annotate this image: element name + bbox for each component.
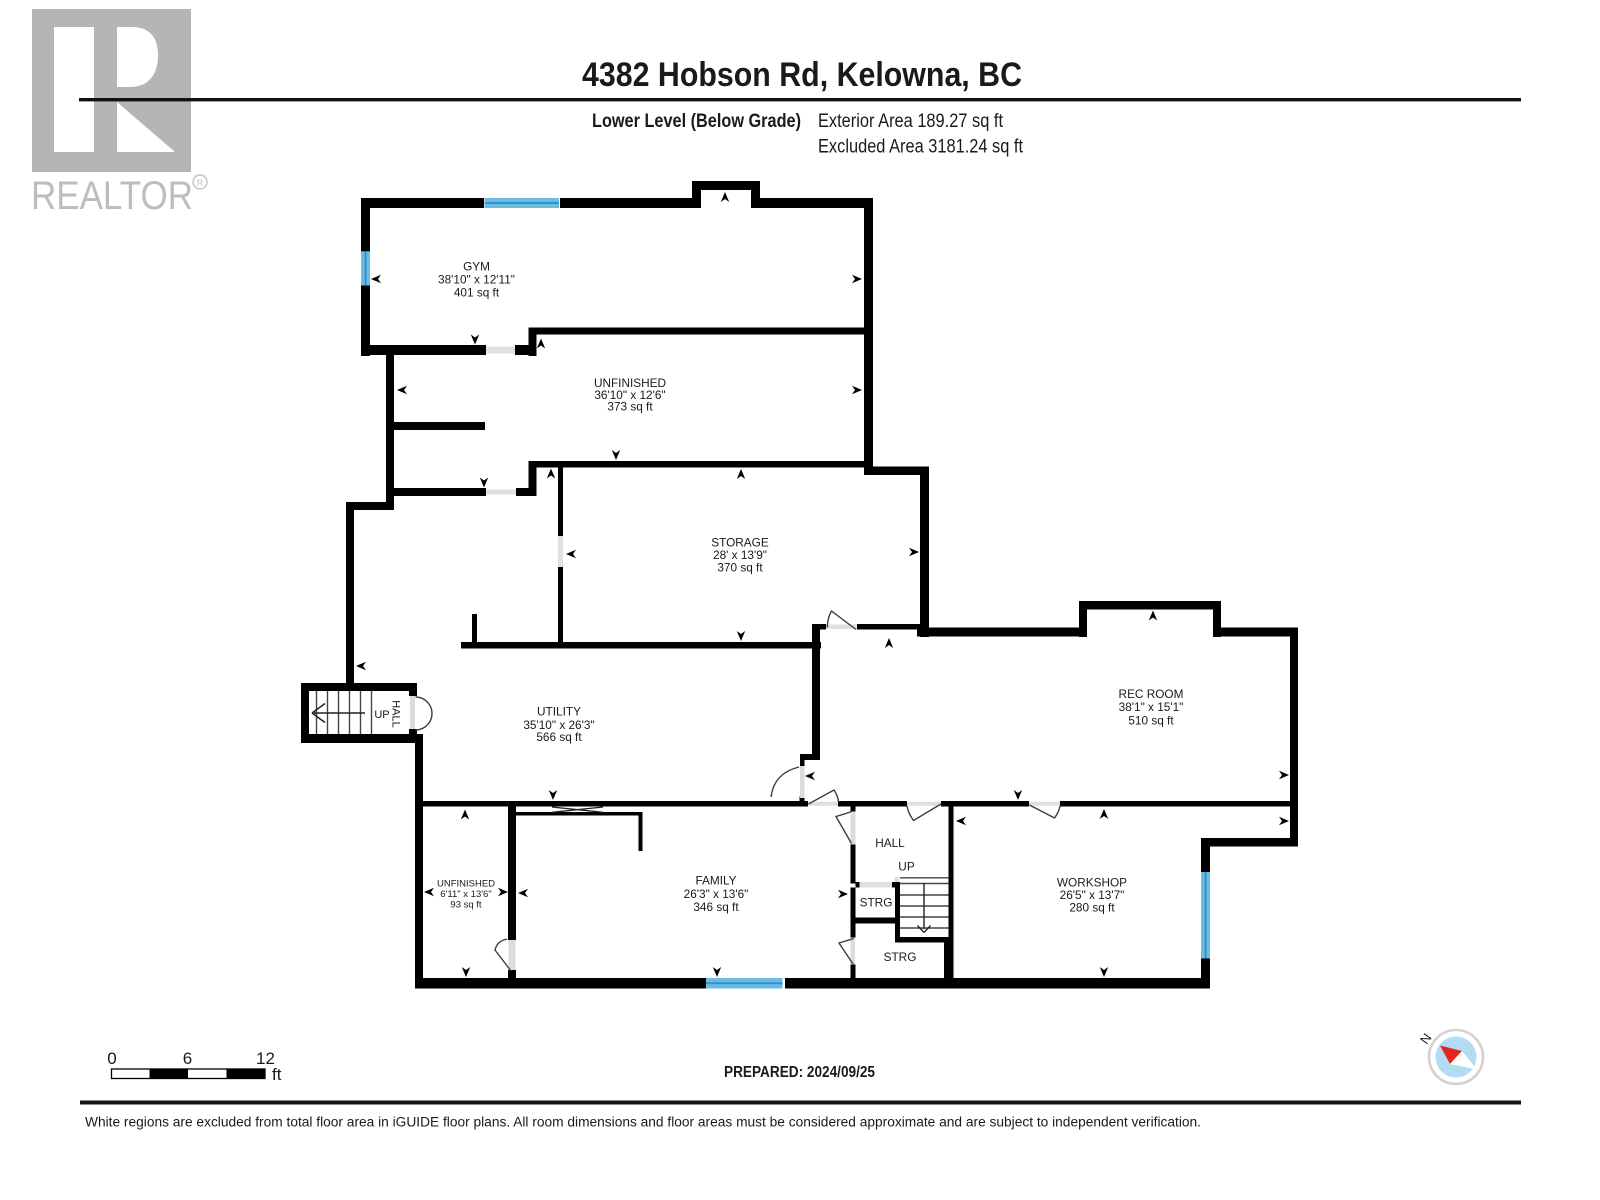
svg-text:UNFINISHED: UNFINISHED [437,879,495,890]
svg-text:510 sq ft: 510 sq ft [1128,714,1174,728]
svg-text:PREPARED: 2024/09/25: PREPARED: 2024/09/25 [724,1064,875,1081]
svg-text:6'11" x 13'6": 6'11" x 13'6" [440,889,491,900]
svg-text:STRG: STRG [884,950,917,964]
svg-text:566 sq ft: 566 sq ft [536,730,582,744]
svg-text:4382 Hobson Rd, Kelowna, BC: 4382 Hobson Rd, Kelowna, BC [582,56,1022,94]
svg-text:STRG: STRG [860,896,893,910]
svg-text:UTILITY: UTILITY [537,704,581,718]
svg-text:401 sq ft: 401 sq ft [454,285,500,299]
svg-text:346 sq ft: 346 sq ft [693,900,739,914]
svg-text:280 sq ft: 280 sq ft [1069,901,1115,915]
svg-text:REALTOR: REALTOR [31,174,193,218]
svg-text:UP: UP [374,709,389,721]
svg-text:373 sq ft: 373 sq ft [607,400,653,414]
svg-text:White regions are excluded fro: White regions are excluded from total fl… [85,1115,1201,1130]
svg-text:REC ROOM: REC ROOM [1119,687,1184,701]
svg-text:GYM: GYM [463,260,490,274]
svg-text:93 sq ft: 93 sq ft [450,900,482,911]
svg-text:HALL: HALL [390,700,402,728]
svg-text:UP: UP [898,860,915,874]
svg-text:HALL: HALL [875,836,905,850]
svg-text:Lower Level (Below Grade): Lower Level (Below Grade) [592,111,801,132]
svg-text:370 sq ft: 370 sq ft [717,560,763,574]
svg-text:R: R [197,178,204,188]
svg-text:0: 0 [107,1049,116,1068]
svg-text:ft: ft [272,1065,282,1084]
svg-text:FAMILY: FAMILY [695,874,736,888]
svg-text:38'1" x 15'1": 38'1" x 15'1" [1119,700,1184,714]
svg-text:Exterior Area 189.27 sq ft: Exterior Area 189.27 sq ft [818,111,1004,132]
svg-text:Excluded Area 3181.24 sq ft: Excluded Area 3181.24 sq ft [818,137,1024,158]
svg-text:6: 6 [183,1049,192,1068]
